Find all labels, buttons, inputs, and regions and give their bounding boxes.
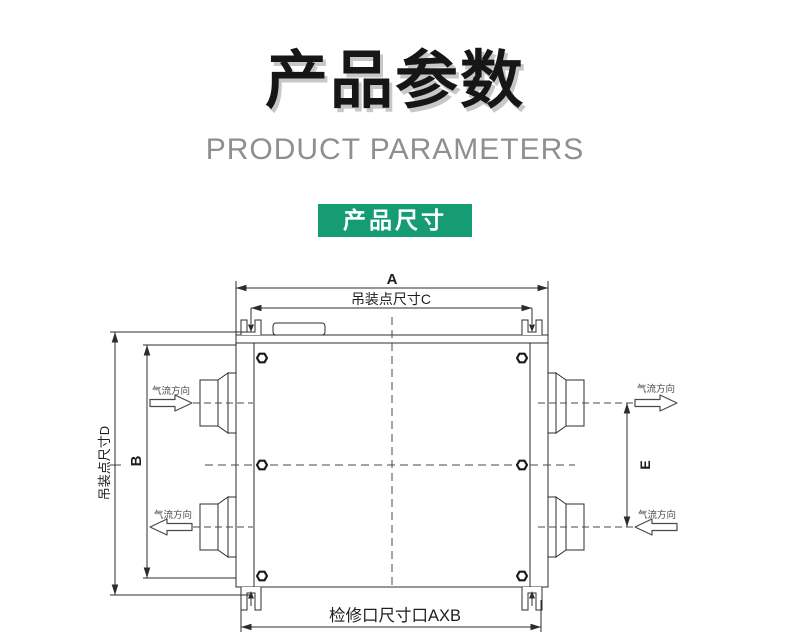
airflow-arrow-top-right-icon	[635, 395, 677, 411]
top-junction-box	[273, 323, 325, 335]
page: 产品参数 PRODUCT PARAMETERS 产品尺寸	[0, 0, 790, 635]
section-badge: 产品尺寸	[318, 204, 472, 237]
dim-label-b: B	[128, 455, 145, 466]
bolt-icon	[517, 461, 527, 470]
dimension-axb: 检修口尺寸口AXB	[241, 600, 541, 632]
page-title: 产品参数	[0, 44, 790, 120]
bolt-icon	[257, 354, 267, 363]
dimension-e: E	[627, 403, 653, 527]
airflow-arrow-bottom-right-icon	[635, 519, 677, 535]
bolt-icon	[257, 461, 267, 470]
airflow-label-top-right: 气流方向	[637, 383, 675, 395]
dim-label-e: E	[637, 460, 653, 469]
bolt-icon	[517, 354, 527, 363]
airflow-label-bottom-right: 气流方向	[638, 509, 676, 521]
airflow-label-bottom-left: 气流方向	[154, 509, 192, 521]
dim-label-a: A	[387, 271, 398, 288]
dimension-diagram: A 吊装点尺寸C 吊装点尺寸D B	[0, 255, 790, 635]
bolt-icon	[257, 572, 267, 581]
page-subtitle: PRODUCT PARAMETERS	[0, 133, 790, 167]
airflow-arrow-top-left-icon	[150, 395, 192, 411]
airflow-label-top-left: 气流方向	[152, 385, 190, 397]
dim-label-axb: 检修口尺寸口AXB	[329, 606, 461, 625]
dim-label-d: 吊装点尺寸D	[97, 426, 112, 500]
bolt-icon	[517, 572, 527, 581]
dim-label-c: 吊装点尺寸C	[351, 291, 431, 307]
airflow-arrow-bottom-left-icon	[150, 519, 192, 535]
